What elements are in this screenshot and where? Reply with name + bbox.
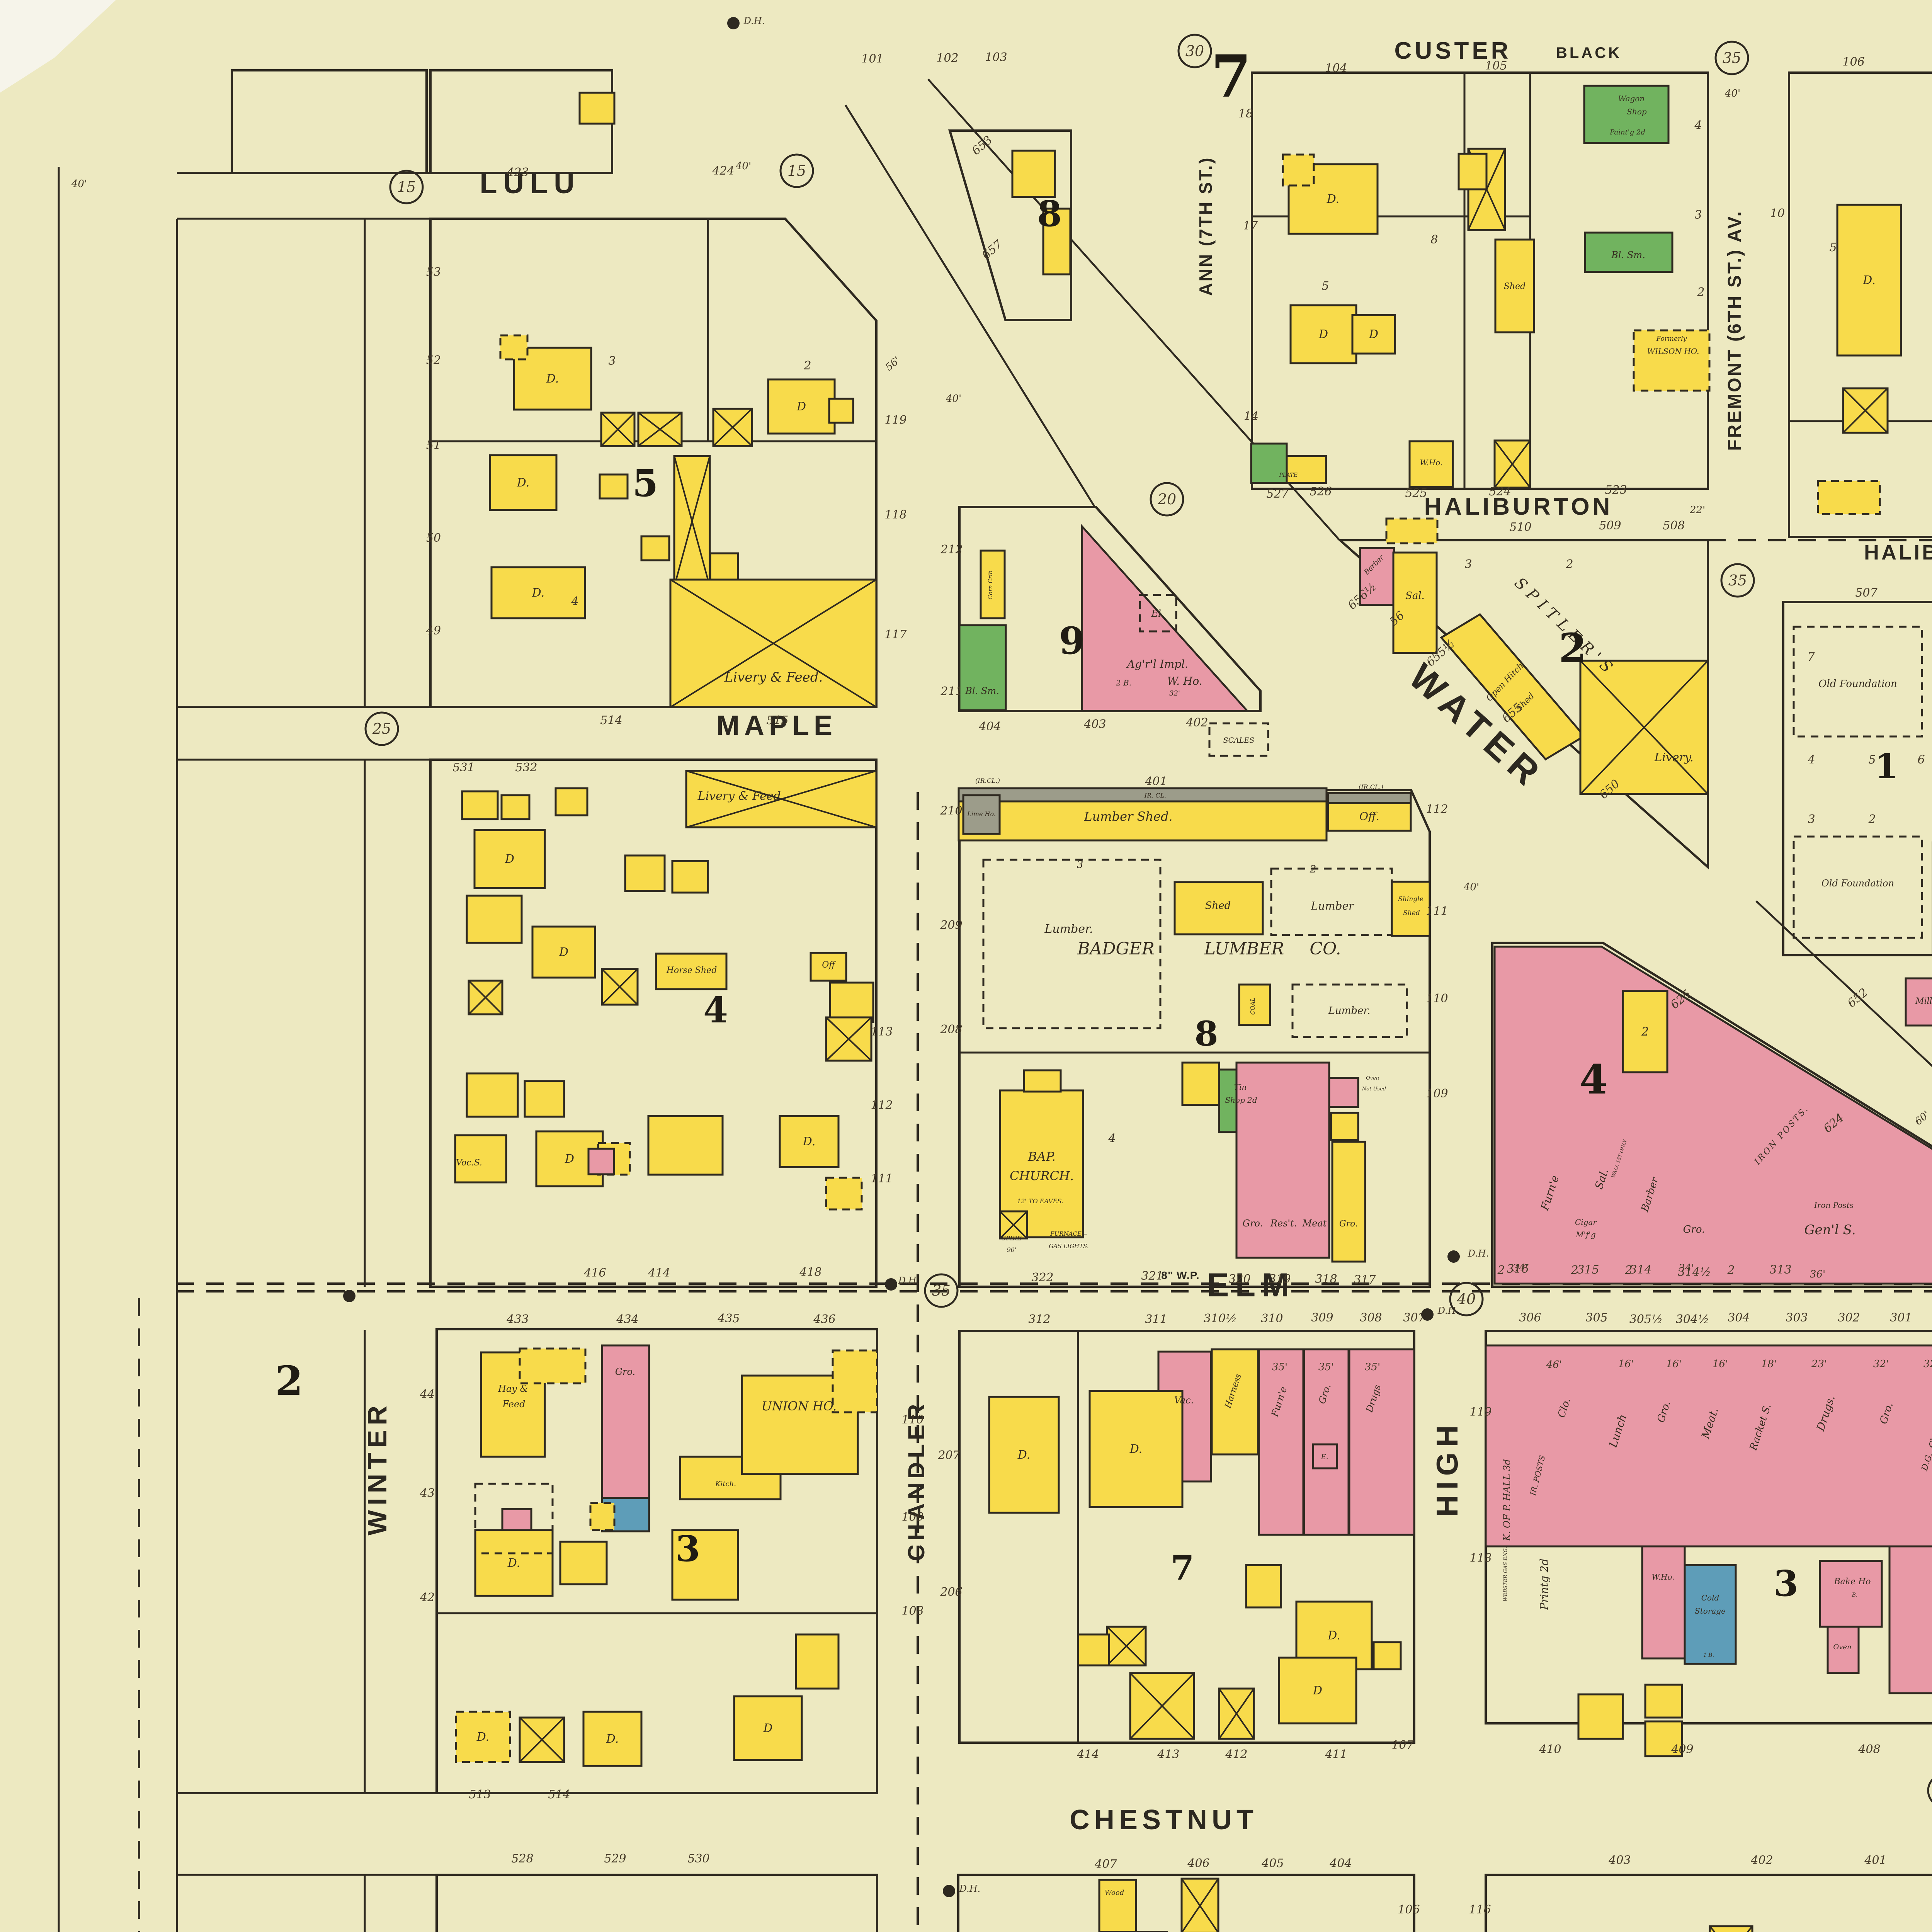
place-label: M'f'g (1575, 1230, 1596, 1239)
house-number: 424 (712, 164, 734, 178)
house-number: 317 (1354, 1273, 1376, 1287)
house-number: 436 (813, 1313, 835, 1326)
house-number: 402 (1185, 716, 1208, 730)
place-label: Oven (1833, 1643, 1851, 1651)
place-label: Livery & Feed. (697, 789, 785, 803)
building (1578, 1694, 1623, 1739)
place-label: WILSON HO. (1647, 347, 1699, 356)
house-number: 212 (940, 543, 963, 556)
house-number: 513 (469, 1788, 491, 1801)
width-label: 35' (1365, 1361, 1380, 1373)
house-number: 117 (884, 628, 907, 641)
house-number: 111 (871, 1172, 893, 1185)
building (1012, 151, 1055, 197)
house-number: 314 (1629, 1263, 1651, 1277)
house-number: 103 (985, 51, 1007, 64)
street-width-number: 15 (787, 162, 806, 179)
place-label: Meat (1302, 1218, 1327, 1229)
house-number: 44 (420, 1388, 435, 1401)
place-label: PLATE (1279, 472, 1298, 478)
house-number: 404 (1329, 1857, 1352, 1870)
building (520, 1349, 585, 1383)
house-number: 118 (884, 508, 906, 522)
house-number: 53 (426, 265, 441, 279)
building (1374, 1642, 1401, 1669)
place-label: Feed (502, 1399, 525, 1410)
place-label: Paint'g 2d (1609, 128, 1645, 136)
place-label: SPIRE (1002, 1235, 1022, 1242)
house-number: 527 (1266, 487, 1289, 501)
house-number: 433 (506, 1313, 529, 1326)
place-label: SCALES (1223, 736, 1255, 745)
place-label: Sal. (1405, 590, 1425, 602)
street-label: FREMONT (6TH ST.) AV. (1725, 210, 1745, 451)
house-number: 304 (1728, 1311, 1750, 1325)
house-number: 315 (1577, 1263, 1599, 1277)
building (1329, 1078, 1358, 1107)
house-number: 321 (1141, 1269, 1163, 1283)
place-label: Off (822, 960, 836, 970)
building-label: D (1313, 1684, 1322, 1697)
house-number: 2 (1727, 1264, 1735, 1277)
place-label: Wood (1105, 1889, 1124, 1897)
width-label: 40' (1725, 88, 1740, 99)
house-number: 8 (1430, 233, 1438, 247)
house-number: 112 (871, 1099, 893, 1112)
place-label: Old Foundation (1818, 678, 1897, 690)
building (467, 896, 522, 943)
house-number: 14 (1244, 410, 1259, 423)
place-label: 90' (1007, 1246, 1017, 1253)
house-number: 320 (1228, 1272, 1250, 1286)
house-number: 4 (571, 595, 578, 608)
place-label: W.Ho. (1420, 458, 1443, 467)
street-width-number: 30 (1185, 43, 1204, 60)
house-number: 412 (1225, 1748, 1247, 1761)
building (1889, 1546, 1932, 1693)
place-label: Gro. (615, 1366, 635, 1377)
house-number: 318 (1315, 1272, 1337, 1286)
building (1024, 1070, 1061, 1092)
building (1304, 1349, 1349, 1535)
house-number: 305 (1585, 1311, 1607, 1325)
street-label: BLACK (1556, 44, 1622, 61)
house-number: 52 (426, 354, 441, 367)
double-hydrant-dot (1421, 1308, 1434, 1321)
width-label: 16' (1666, 1358, 1682, 1370)
place-label: W. Ho. (1167, 675, 1202, 687)
house-number: 423 (506, 166, 529, 179)
width-label: 32' (1873, 1358, 1889, 1370)
width-label: 34' (1679, 1262, 1694, 1274)
width-label: 40' (71, 178, 87, 190)
building (1332, 1142, 1365, 1262)
house-number: 5 (1829, 241, 1837, 254)
place-label: CO. (1310, 939, 1341, 959)
house-number: 435 (717, 1312, 740, 1325)
house-number: 406 (1187, 1857, 1209, 1870)
building (588, 1149, 614, 1174)
building (710, 553, 738, 580)
house-number: 2 (1497, 1264, 1505, 1277)
house-number: 408 (1858, 1743, 1880, 1756)
house-number: 211 (940, 685, 963, 698)
building (1246, 1565, 1281, 1607)
house-number: 413 (1157, 1748, 1179, 1761)
building (556, 788, 587, 815)
place-label: Shop (1627, 107, 1647, 116)
building-label: D (796, 400, 806, 413)
house-number: 3 (608, 354, 616, 368)
double-hydrant-dot (943, 1885, 955, 1897)
house-number: 312 (1028, 1313, 1050, 1326)
block-number: 1 (1874, 746, 1898, 786)
datum-height-label: D.H. (743, 15, 765, 26)
map-canvas: D.DD.D.DDDD.D.DDD.D.D.D.D2D.D.D.DD.D.D.D… (0, 0, 1932, 1932)
building-label: D. (507, 1556, 520, 1570)
building (580, 93, 614, 124)
house-number: 102 (936, 51, 958, 65)
house-number: 526 (1310, 485, 1332, 498)
street-label: HALIBURTON (1424, 493, 1613, 520)
width-label: 40' (1463, 881, 1479, 893)
place-label: Storage (1695, 1606, 1726, 1616)
place-label: Vac. (1174, 1395, 1194, 1406)
place-label: CHURCH. (1010, 1168, 1074, 1183)
place-label: Oven (1366, 1075, 1379, 1081)
width-label: 35' (1272, 1361, 1287, 1373)
house-number: 531 (452, 761, 474, 774)
house-number: 119 (884, 413, 906, 427)
street-label: 8" W.P. (1161, 1269, 1199, 1281)
width-label: 18' (1761, 1358, 1777, 1370)
house-number: 50 (426, 531, 441, 545)
house-number: 10 (1770, 207, 1785, 220)
place-label: El. (1151, 608, 1164, 619)
house-number: 403 (1608, 1854, 1631, 1867)
house-number: 109 (901, 1510, 923, 1524)
house-number: 508 (1663, 519, 1685, 532)
building (1818, 481, 1880, 514)
place-label: Gro. (1243, 1218, 1263, 1229)
place-label: Lumber Shed. (1083, 809, 1172, 824)
house-number: 111 (1426, 905, 1448, 918)
place-label: BADGER (1077, 939, 1155, 959)
sanborn-map-sheet: D.DD.D.DDDD.D.DDD.D.D.D.D2D.D.D.DD.D.D.D… (0, 0, 1932, 1932)
building (1393, 553, 1437, 653)
datum-height-label: D.H. (1468, 1248, 1489, 1259)
building (1820, 1561, 1882, 1627)
house-number: 3 (1808, 813, 1815, 826)
building-label: 2 (1641, 1025, 1649, 1039)
building (796, 1634, 838, 1689)
house-number: 109 (1426, 1087, 1448, 1100)
house-number: 3 (1694, 208, 1702, 222)
place-label: (IR.CL.) (975, 777, 1000, 784)
place-label: Shingle (1398, 895, 1423, 903)
building-label: D. (532, 586, 545, 600)
house-number: 401 (1145, 775, 1167, 788)
width-label: 40' (946, 393, 961, 405)
block-number: 2 (1559, 624, 1587, 672)
place-label: Lime Ho. (967, 810, 996, 818)
building-label: D. (1862, 274, 1876, 287)
building (467, 1073, 518, 1117)
place-label: Gro. (1683, 1224, 1705, 1235)
building (600, 474, 628, 498)
street-label: ANN (7TH ST.) (1196, 156, 1216, 296)
place-label: Bl. Sm. (1611, 250, 1645, 260)
house-number: 304½ (1676, 1313, 1709, 1326)
building (462, 791, 498, 819)
place-label: Shed (1504, 282, 1526, 291)
house-number: 418 (799, 1265, 821, 1279)
place-label: Gen'l S. (1804, 1222, 1855, 1238)
block-number: 8 (1037, 193, 1062, 235)
place-label: Lumber. (1328, 1005, 1371, 1017)
street-width-number: 25 (372, 720, 391, 737)
building-label: D. (517, 476, 530, 490)
building (1486, 1345, 1932, 1546)
house-number: 416 (583, 1266, 606, 1280)
place-label: Bake Ho (1833, 1577, 1871, 1587)
place-label: LUMBER (1204, 939, 1284, 959)
building (829, 399, 853, 423)
house-number: 514 (548, 1788, 570, 1801)
building (641, 536, 669, 560)
house-number: 310 (1261, 1312, 1283, 1325)
building (648, 1116, 723, 1175)
street-label: WINTER (362, 1401, 392, 1536)
width-label: 23' (1811, 1358, 1827, 1370)
place-label: Shop 2d (1225, 1095, 1257, 1105)
house-number: 509 (1599, 519, 1621, 532)
house-number: 313 (1769, 1263, 1791, 1277)
house-number: 405 (1261, 1857, 1284, 1870)
building (833, 1350, 877, 1412)
building (1212, 1349, 1258, 1454)
house-number: 51 (426, 439, 441, 452)
house-number: 17 (1243, 219, 1258, 233)
building (959, 788, 1327, 801)
house-number: 507 (1855, 586, 1878, 600)
house-number: 530 (687, 1852, 709, 1866)
building (1283, 155, 1314, 185)
house-number: 434 (616, 1313, 638, 1326)
house-number: 108 (901, 1604, 923, 1618)
building (1386, 519, 1437, 543)
building (502, 795, 529, 819)
place-label: (IR.CL.) (1359, 783, 1383, 791)
block-number: 5 (633, 461, 658, 505)
place-label: WEBSTER GAS ENG. (1503, 1547, 1509, 1601)
building-label: D (1369, 328, 1378, 341)
block-number: 9 (1059, 619, 1085, 663)
house-number: 401 (1864, 1854, 1886, 1867)
block-number: 3 (1774, 1563, 1798, 1604)
house-number: 110 (1426, 992, 1448, 1005)
building-label: D (565, 1152, 574, 1166)
place-label: Voc.S. (456, 1158, 482, 1168)
building (959, 625, 1006, 710)
place-label: GAS LIGHTS. (1049, 1243, 1088, 1250)
house-number: 4 (1807, 753, 1815, 767)
building-label: D. (546, 372, 559, 386)
building-label: D. (606, 1732, 619, 1746)
house-number: 106 (1842, 55, 1864, 69)
building (826, 1178, 862, 1209)
house-number: 306 (1519, 1311, 1541, 1325)
building-label: D. (476, 1730, 490, 1744)
building (1710, 1926, 1752, 1932)
house-number: 106 (1398, 1903, 1420, 1917)
building (500, 335, 527, 359)
house-number: 206 (940, 1585, 962, 1599)
place-label: 1 B. (1703, 1652, 1714, 1658)
house-number: 404 (978, 720, 1001, 733)
house-number: 7 (1807, 650, 1815, 664)
block-number: 7 (1211, 43, 1251, 111)
building-label: D. (803, 1135, 816, 1148)
place-label: Shed (1205, 900, 1231, 912)
place-label: Bl. Sm. (965, 685, 999, 696)
width-label: 36' (1810, 1269, 1825, 1280)
place-label: E. (1321, 1453, 1328, 1461)
place-label: Iron Posts (1814, 1201, 1854, 1210)
house-number: 101 (861, 52, 883, 66)
building-label: D. (1327, 1629, 1340, 1643)
place-label: Old Foundation (1821, 878, 1894, 889)
place-label: Off. (1359, 810, 1379, 823)
house-number: 319 (1269, 1272, 1291, 1286)
place-label: Gro. (1339, 1219, 1358, 1229)
street-label: LULU (480, 167, 580, 199)
street-width-number: 20 (1157, 491, 1176, 508)
place-label: Cold (1701, 1593, 1719, 1602)
house-number: 209 (940, 918, 962, 932)
building-label: D. (1129, 1442, 1143, 1456)
width-label: 16' (1618, 1358, 1634, 1370)
building (1078, 1634, 1109, 1665)
street-width-number: 15 (397, 179, 416, 196)
block-number: 3 (675, 1528, 700, 1570)
building (525, 1081, 564, 1117)
place-label: UNION HO. (762, 1399, 837, 1413)
place-label: Printg 2d (1538, 1558, 1551, 1610)
house-number: 524 (1489, 485, 1511, 498)
street-width-number: 40 (1457, 1291, 1476, 1308)
place-label: 12' TO EAVES. (1017, 1197, 1063, 1205)
building (1182, 1063, 1219, 1105)
house-number: 514 (600, 714, 622, 727)
place-label: 32' (1169, 689, 1180, 697)
building (1642, 1546, 1685, 1658)
house-number: 525 (1405, 486, 1427, 500)
house-number: 308 (1360, 1311, 1382, 1325)
building (1349, 1349, 1414, 1535)
house-number: 311 (1145, 1313, 1167, 1326)
double-hydrant-dot (343, 1290, 355, 1302)
width-label: 32' (1923, 1358, 1932, 1370)
place-label: FURNACE— (1050, 1230, 1087, 1237)
place-label: BAP. (1027, 1149, 1056, 1164)
house-number: 116 (1469, 1903, 1491, 1917)
place-label: Horse Shed (666, 966, 717, 975)
building (590, 1503, 614, 1530)
house-number: 414 (1077, 1748, 1099, 1761)
building-label: D. (1327, 192, 1340, 206)
house-number: 310½ (1204, 1312, 1237, 1325)
house-number: 113 (871, 1025, 893, 1039)
house-number: 2 (1565, 558, 1573, 571)
width-label: 40' (735, 160, 751, 172)
width-label: 34' (1512, 1262, 1528, 1274)
house-number: 2 (803, 359, 811, 372)
place-label: K. OF P. HALL 3d (1502, 1459, 1512, 1541)
house-number: 210 (940, 804, 962, 818)
building (672, 861, 708, 893)
place-label: Kitch. (715, 1480, 736, 1488)
building (1328, 793, 1411, 803)
block-number: 4 (703, 989, 728, 1031)
building (560, 1542, 607, 1584)
house-number: 407 (1094, 1857, 1117, 1871)
house-number: 118 (1469, 1551, 1492, 1565)
house-number: 107 (1391, 1738, 1414, 1752)
double-hydrant-dot (727, 17, 740, 29)
place-label: Ag'r'l Impl. (1126, 658, 1188, 670)
house-number: 410 (1539, 1743, 1561, 1756)
place-label: Livery & Feed. (724, 670, 823, 685)
building (1331, 1113, 1358, 1140)
house-number: 42 (420, 1591, 435, 1604)
street-label: CHESTNUT (1070, 1804, 1258, 1835)
house-number: 303 (1786, 1311, 1808, 1325)
house-number: 207 (937, 1449, 960, 1462)
datum-height-label: D.H. (898, 1275, 920, 1286)
house-number: 3 (1464, 558, 1472, 571)
width-label: 16' (1713, 1358, 1728, 1370)
street-label: HALIBURTON (1864, 541, 1932, 564)
street-label: HIGH (1430, 1420, 1464, 1517)
house-number: 5 (1321, 279, 1329, 293)
street-width-number: 35 (1728, 572, 1747, 589)
place-label: W.Ho. (1652, 1572, 1675, 1582)
building (1099, 1880, 1136, 1932)
house-number: 402 (1750, 1854, 1773, 1867)
datum-height-label: D.H. (959, 1883, 981, 1894)
place-label: COAL (1249, 998, 1256, 1015)
house-number: 411 (1325, 1748, 1347, 1761)
house-number: 305½ (1629, 1313, 1663, 1326)
house-number: 302 (1838, 1311, 1860, 1325)
double-hydrant-dot (1447, 1250, 1460, 1263)
house-number: 6 (1917, 753, 1925, 767)
house-number: 2 (1624, 1264, 1632, 1277)
house-number: 528 (511, 1852, 533, 1866)
building (1645, 1685, 1682, 1718)
house-number: 532 (515, 761, 537, 774)
block-number: 8 (1194, 1014, 1218, 1054)
house-number: 510 (1509, 520, 1531, 534)
building (830, 983, 873, 1022)
place-label: Tin (1234, 1082, 1247, 1092)
building-label: D (1318, 328, 1328, 341)
building-label: D (763, 1722, 772, 1735)
place-label: Lumber (1310, 900, 1354, 912)
house-number: 414 (648, 1266, 670, 1280)
house-number: 49 (426, 624, 441, 638)
